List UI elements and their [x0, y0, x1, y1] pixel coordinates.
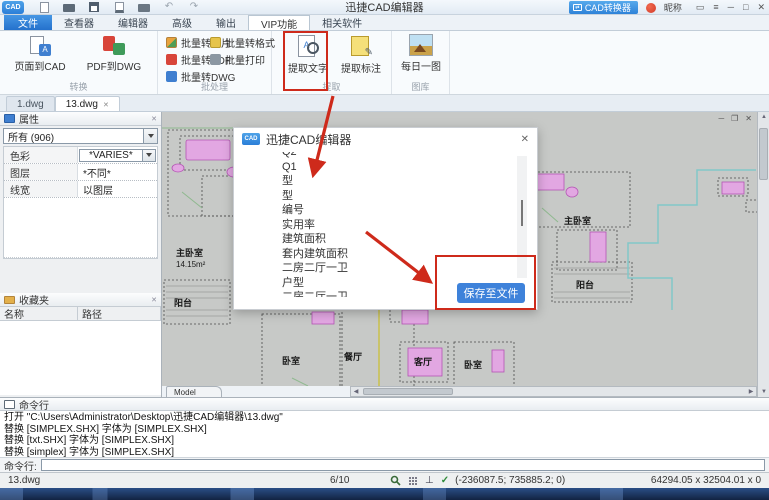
dropdown-arrow-icon[interactable] — [143, 129, 157, 143]
command-log: 打开 "C:\Users\Administrator\Desktop\迅捷CAD… — [0, 411, 769, 459]
group-convert: 页面到CAD PDF到DWG 转换 — [0, 31, 158, 94]
window-controls — [696, 3, 765, 12]
osnap-icon[interactable] — [441, 475, 449, 486]
close-button[interactable] — [757, 3, 765, 12]
room-label: 卧室 — [464, 359, 482, 370]
doc-tab-13dwg[interactable]: 13.dwg — [55, 96, 120, 111]
left-panel: 属性 所有 (906) 色彩 *VARIES* 图层 *不同* 线宽 以图层 — [0, 112, 162, 397]
command-panel-header: 命令行 — [0, 398, 769, 411]
scroll-left-icon[interactable]: ◀ — [351, 388, 361, 396]
properties-icon — [4, 114, 15, 123]
batch-image-icon — [166, 37, 177, 48]
group-extract: 提取文字 提取标注 提取 — [272, 31, 392, 94]
print-icon[interactable] — [138, 1, 150, 13]
favorites-icon — [4, 296, 15, 304]
document-tabs: 1.dwg 13.dwg — [0, 95, 769, 112]
batch-format-button[interactable]: 批量转格式 — [210, 35, 275, 50]
model-tab[interactable]: Model — [166, 386, 222, 397]
room-label: 客厅 — [413, 356, 432, 367]
batch-format-icon — [210, 37, 221, 48]
vertical-scrollbar[interactable]: ▲ ▼ — [757, 112, 769, 397]
daily-image-icon — [409, 34, 433, 56]
dropdown-arrow-icon[interactable] — [142, 150, 155, 161]
app-window: CAD ↶ ↷ 迅捷CAD编辑器 ⇄ CAD转换器 昵称 — [0, 0, 769, 500]
daily-image-button[interactable]: 每日一图 — [397, 34, 445, 82]
page-to-cad-button[interactable]: 页面到CAD — [8, 34, 72, 82]
cad-converter-button[interactable]: ⇄ CAD转换器 — [569, 1, 638, 14]
properties-table: 色彩 *VARIES* 图层 *不同* 线宽 以图层 — [3, 146, 158, 259]
command-input[interactable] — [41, 459, 765, 471]
properties-header: 属性 — [0, 112, 161, 126]
dialog-scrollbar[interactable] — [517, 156, 527, 278]
redo-icon[interactable]: ↷ — [188, 1, 200, 13]
mdi-restore-icon[interactable]: ❐ — [731, 114, 738, 123]
ribbon: 页面到CAD PDF到DWG 转换 批量转图片 批量转PDF 批量转DWG 批处… — [0, 31, 769, 95]
feedback-icon[interactable] — [696, 3, 705, 12]
minimize-button[interactable] — [728, 3, 734, 12]
batch-print-button[interactable]: 批量打印 — [210, 52, 265, 67]
export-file-icon[interactable] — [113, 1, 125, 13]
command-input-row: 命令行: — [0, 457, 769, 472]
extract-text-button[interactable]: 提取文字 — [286, 34, 330, 82]
menu-bar: 文件 查看器 编辑器 高级 输出 VIP功能 相关软件 — [0, 16, 769, 31]
room-area-label: 14.15m² — [176, 260, 206, 269]
open-file-icon[interactable] — [63, 1, 75, 13]
status-extent: 64294.05 x 32504.01 x 0 — [651, 475, 769, 486]
title-bar: CAD ↶ ↷ 迅捷CAD编辑器 ⇄ CAD转换器 昵称 — [0, 0, 769, 15]
pdf-to-dwg-button[interactable]: PDF到DWG — [82, 34, 146, 82]
undo-icon[interactable]: ↶ — [163, 1, 175, 13]
room-label: 餐厅 — [343, 351, 362, 362]
horizontal-scrollbar[interactable]: ◀ ▶ — [350, 386, 757, 397]
mdi-minimize-icon[interactable]: ─ — [718, 114, 724, 123]
save-to-file-button[interactable]: 保存至文件 — [457, 283, 525, 303]
log-line: 替换 [SIMPLEX.SHX] 字体为 [SIMPLEX.SHX] — [4, 424, 765, 436]
properties-empty-area — [4, 198, 157, 258]
panel-close-icon[interactable] — [151, 113, 157, 124]
status-coordinates: (-236087.5; 735885.2; 0) — [455, 475, 651, 486]
vertical-scroll-thumb[interactable] — [759, 128, 768, 180]
windows-taskbar[interactable] — [0, 488, 769, 500]
room-label: 主卧室 — [176, 247, 203, 258]
favorites-header: 收藏夹 — [0, 293, 161, 307]
app-logo-icon[interactable]: CAD — [2, 1, 24, 14]
extract-text-dialog: CAD 迅捷CAD编辑器 Q2 Q1 型 型 编号 实用率 建筑面积 套内建筑面… — [233, 127, 538, 310]
horizontal-scroll-thumb[interactable] — [363, 388, 453, 395]
property-row-layer: 图层 *不同* — [4, 164, 157, 181]
batch-print-icon — [210, 54, 221, 65]
properties-filter-dropdown[interactable]: 所有 (906) — [3, 128, 158, 144]
extracted-text-list[interactable]: Q2 Q1 型 型 编号 实用率 建筑面积 套内建筑面积 二房二厅一卫 户型 二… — [282, 152, 492, 297]
extract-annotation-button[interactable]: 提取标注 — [338, 34, 384, 82]
room-label: 阳台 — [174, 297, 192, 308]
quick-access-toolbar: ↶ ↷ — [38, 1, 200, 13]
converter-icon: ⇄ — [573, 4, 582, 11]
room-label: 主卧室 — [564, 215, 591, 226]
save-file-icon[interactable] — [88, 1, 100, 13]
batch-pdf-icon — [166, 54, 177, 65]
property-row-color: 色彩 *VARIES* — [4, 147, 157, 164]
dialog-scroll-thumb[interactable] — [521, 200, 523, 226]
color-value-dropdown[interactable]: *VARIES* — [79, 149, 156, 162]
menu-icon[interactable] — [713, 3, 718, 12]
new-file-icon[interactable] — [38, 1, 50, 13]
avatar[interactable] — [646, 3, 656, 13]
room-label: 阳台 — [576, 279, 594, 290]
dialog-logo-icon: CAD — [242, 133, 260, 145]
pdf-to-dwg-icon — [103, 34, 125, 56]
tab-related[interactable]: 相关软件 — [310, 15, 374, 30]
favorites-panel: 收藏夹 名称 路径 — [0, 293, 161, 395]
page-to-cad-icon — [29, 34, 51, 56]
tab-vip[interactable]: VIP功能 — [248, 15, 310, 30]
scroll-up-icon[interactable]: ▲ — [758, 112, 769, 122]
room-label: 卧室 — [282, 355, 300, 366]
extract-annotation-icon — [349, 34, 373, 58]
mdi-close-icon[interactable]: ✕ — [745, 114, 752, 123]
extract-text-icon — [296, 34, 320, 58]
tab-file[interactable]: 文件 — [4, 15, 52, 30]
tab-close-icon[interactable] — [103, 99, 109, 110]
ortho-icon[interactable] — [425, 475, 434, 486]
log-line: 替换 [txt.SHX] 字体为 [SIMPLEX.SHX] — [4, 435, 765, 447]
status-progress: 6/10 — [330, 475, 390, 486]
favorites-list[interactable] — [0, 321, 161, 395]
grid-snap-icon[interactable] — [408, 476, 418, 486]
log-line: 打开 "C:\Users\Administrator\Desktop\迅捷CAD… — [4, 412, 765, 424]
dialog-header: CAD 迅捷CAD编辑器 — [234, 128, 537, 150]
maximize-button[interactable] — [743, 3, 748, 12]
scroll-down-icon[interactable]: ▼ — [758, 387, 769, 397]
status-bar: 13.dwg 6/10 (-236087.5; 735885.2; 0) 642… — [0, 472, 769, 488]
property-row-lineweight: 线宽 以图层 — [4, 181, 157, 198]
panel-close-icon[interactable] — [151, 294, 157, 305]
titlebar-right: ⇄ CAD转换器 昵称 — [569, 0, 765, 15]
scroll-right-icon[interactable]: ▶ — [746, 388, 756, 396]
tab-editor[interactable]: 编辑器 — [106, 15, 160, 30]
favorites-columns: 名称 路径 — [0, 307, 161, 321]
user-nickname: 昵称 — [664, 1, 682, 14]
status-icons — [390, 475, 449, 486]
status-filename: 13.dwg — [0, 475, 330, 486]
command-panel: 命令行 打开 "C:\Users\Administrator\Desktop\迅… — [0, 397, 769, 457]
doc-tab-1dwg[interactable]: 1.dwg — [6, 96, 55, 111]
command-icon — [4, 400, 15, 409]
tab-advanced[interactable]: 高级 — [160, 15, 204, 30]
group-gallery: 每日一图 图库 — [392, 31, 450, 94]
dialog-close-icon[interactable] — [521, 133, 529, 145]
tab-output[interactable]: 输出 — [204, 15, 248, 30]
zoom-tool-icon[interactable] — [390, 475, 401, 486]
tab-viewer[interactable]: 查看器 — [52, 15, 106, 30]
mdi-window-controls: ─ ❐ ✕ — [718, 114, 752, 123]
